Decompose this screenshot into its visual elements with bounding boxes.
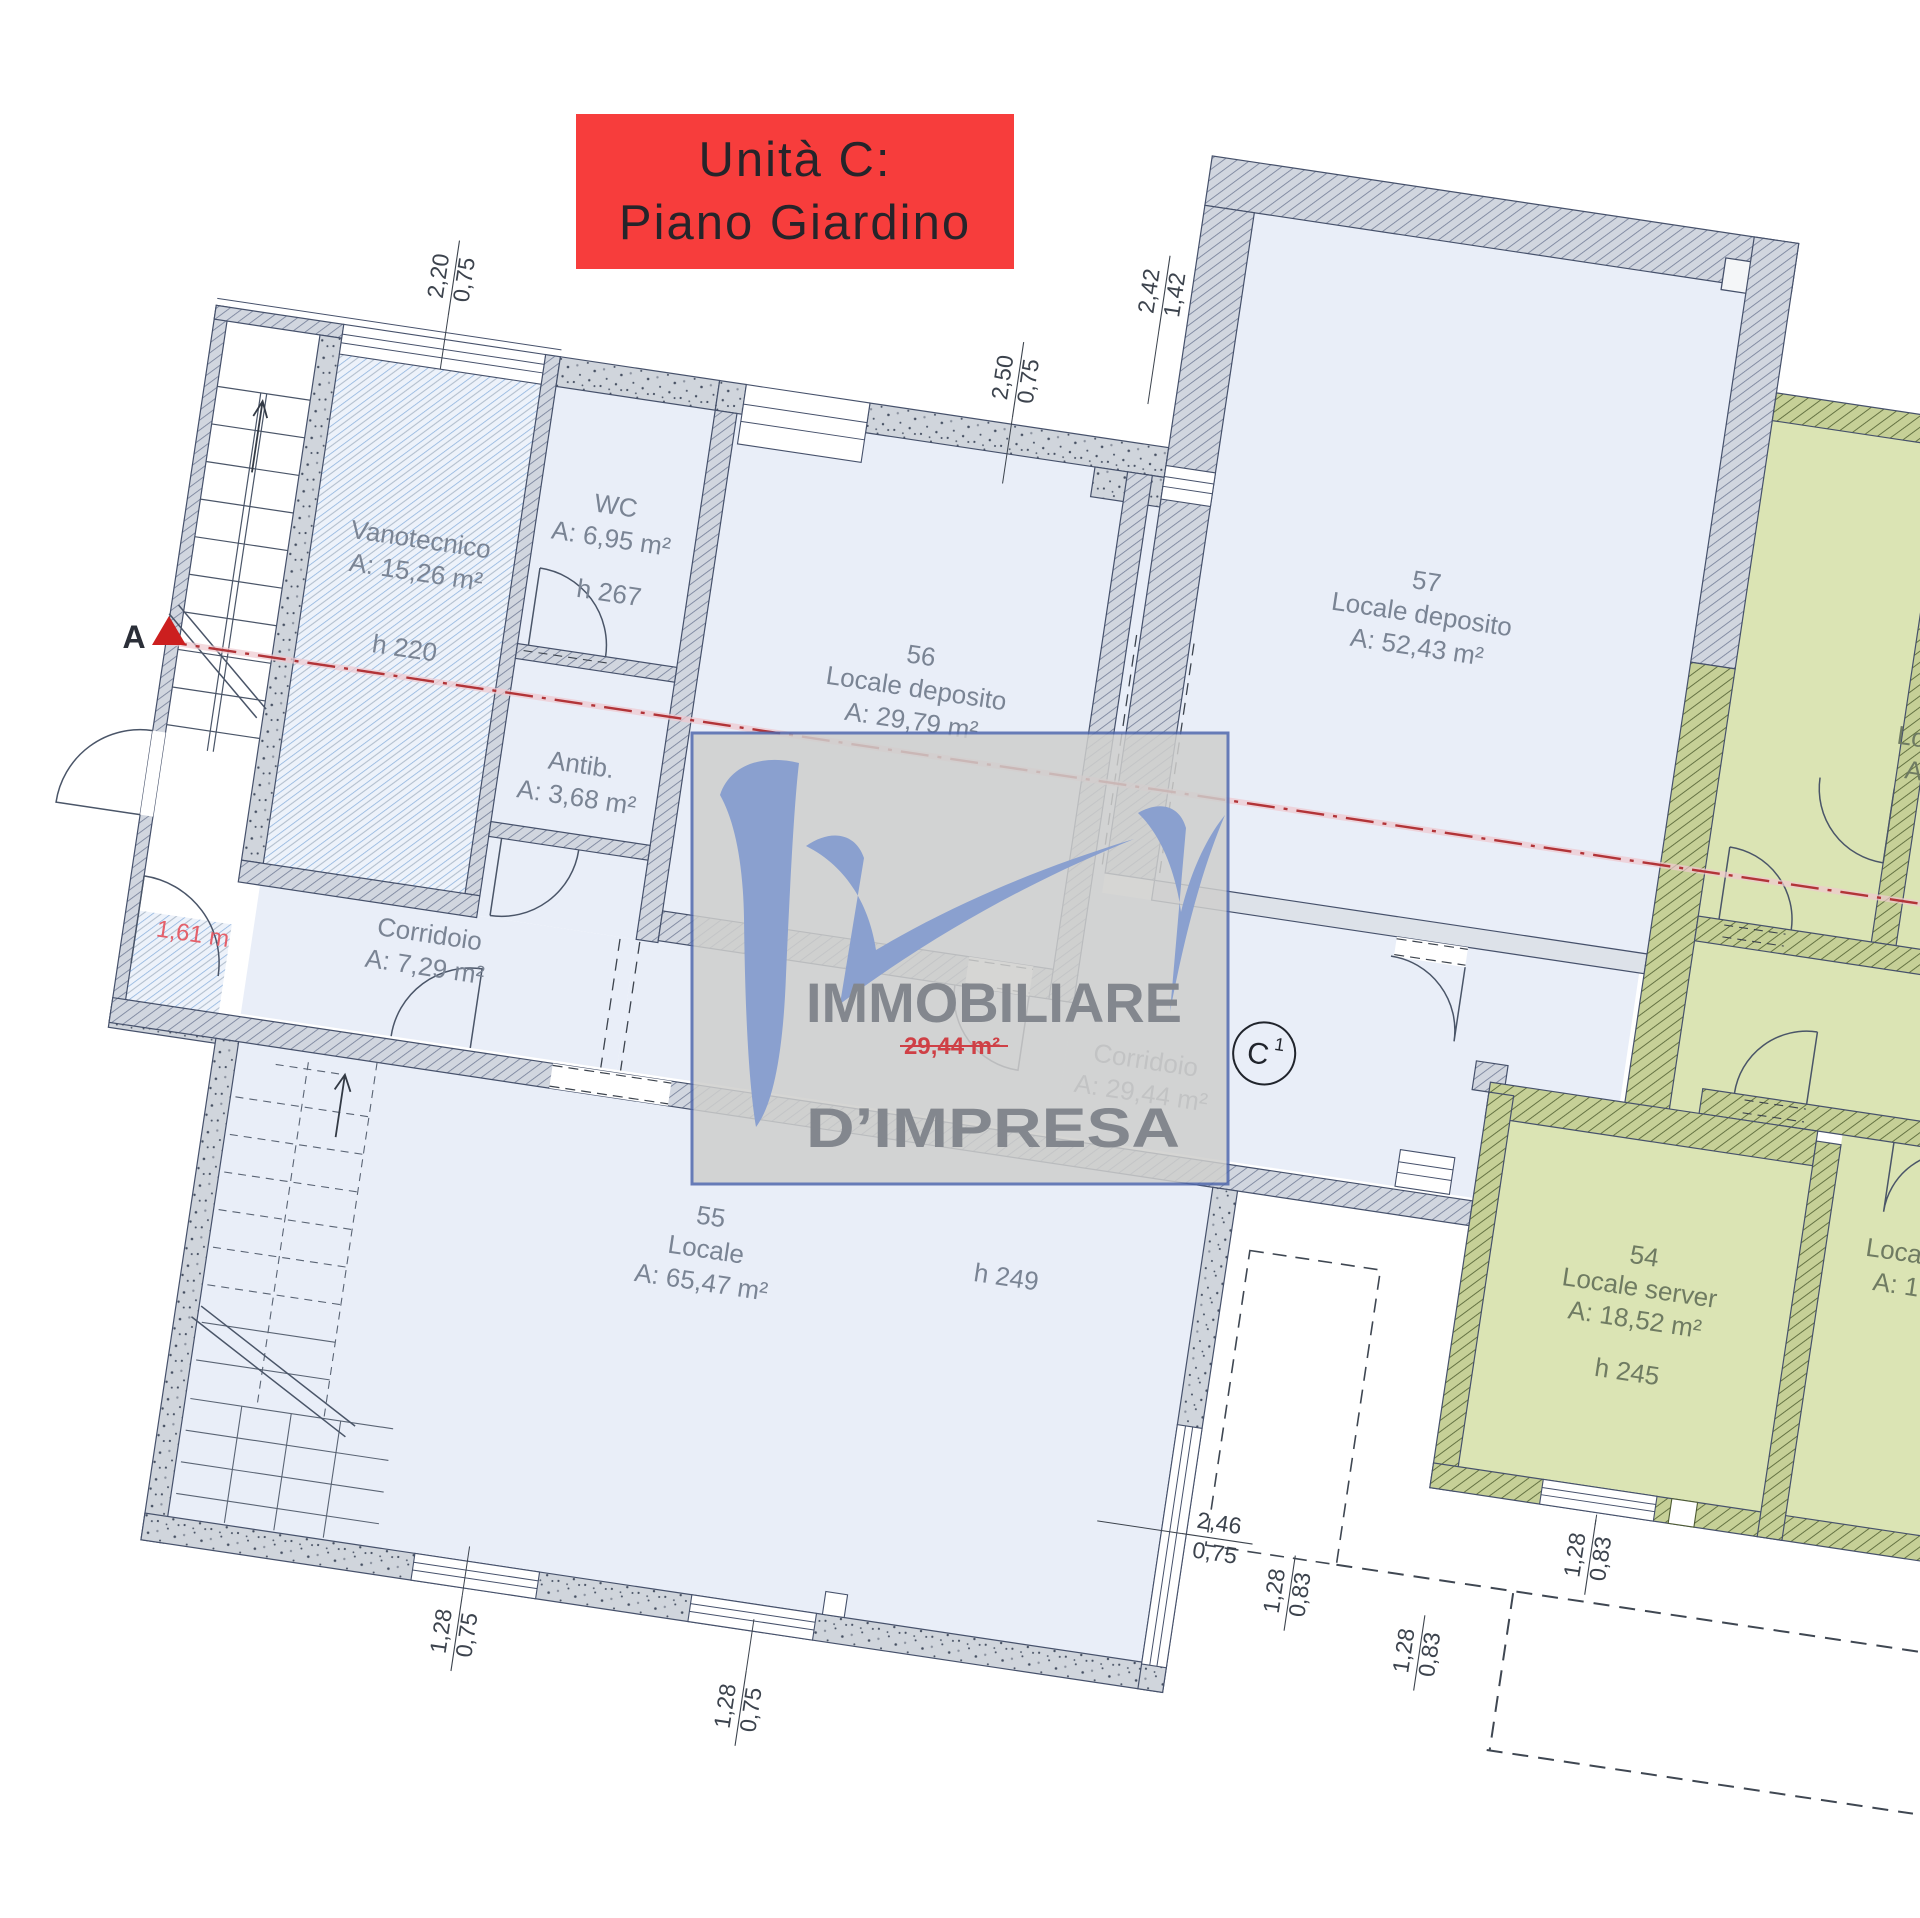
svg-text:57: 57 (1410, 564, 1443, 598)
svg-text:56: 56 (905, 638, 938, 672)
svg-text:D’IMPRESA: D’IMPRESA (806, 1096, 1180, 1159)
svg-text:55: 55 (694, 1199, 727, 1233)
svg-text:Unità C:: Unità C: (698, 133, 891, 187)
svg-text:WC: WC (592, 488, 639, 524)
svg-text:Piano Giardino: Piano Giardino (619, 196, 971, 250)
svg-text:IMMOBILIARE: IMMOBILIARE (806, 971, 1182, 1034)
svg-text:A: A (122, 619, 145, 655)
svg-text:54: 54 (1628, 1239, 1661, 1273)
